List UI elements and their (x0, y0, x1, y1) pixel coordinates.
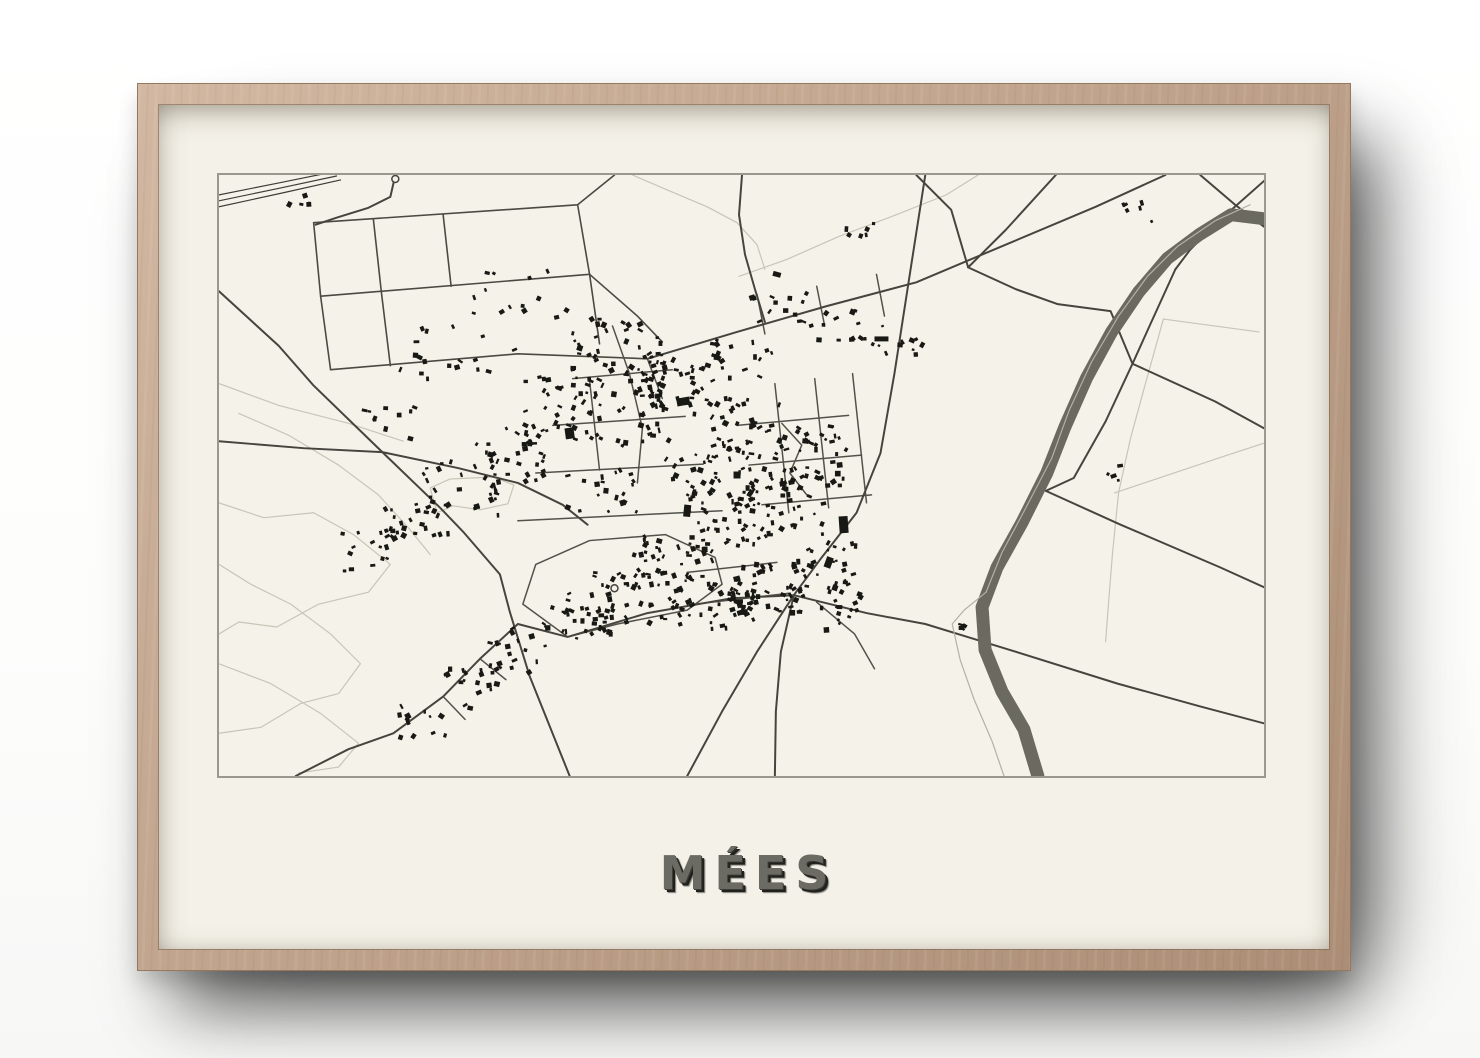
buildings-layer (286, 193, 1153, 741)
map-title: MÉES (159, 850, 1329, 896)
map-panel (217, 173, 1266, 778)
river-layer (982, 215, 1264, 776)
wall-background: MÉES (0, 0, 1480, 1058)
town-map-svg (219, 175, 1264, 776)
poster-mat: MÉES (159, 105, 1329, 949)
railway-layer (219, 175, 341, 207)
picture-frame: MÉES (138, 84, 1350, 970)
